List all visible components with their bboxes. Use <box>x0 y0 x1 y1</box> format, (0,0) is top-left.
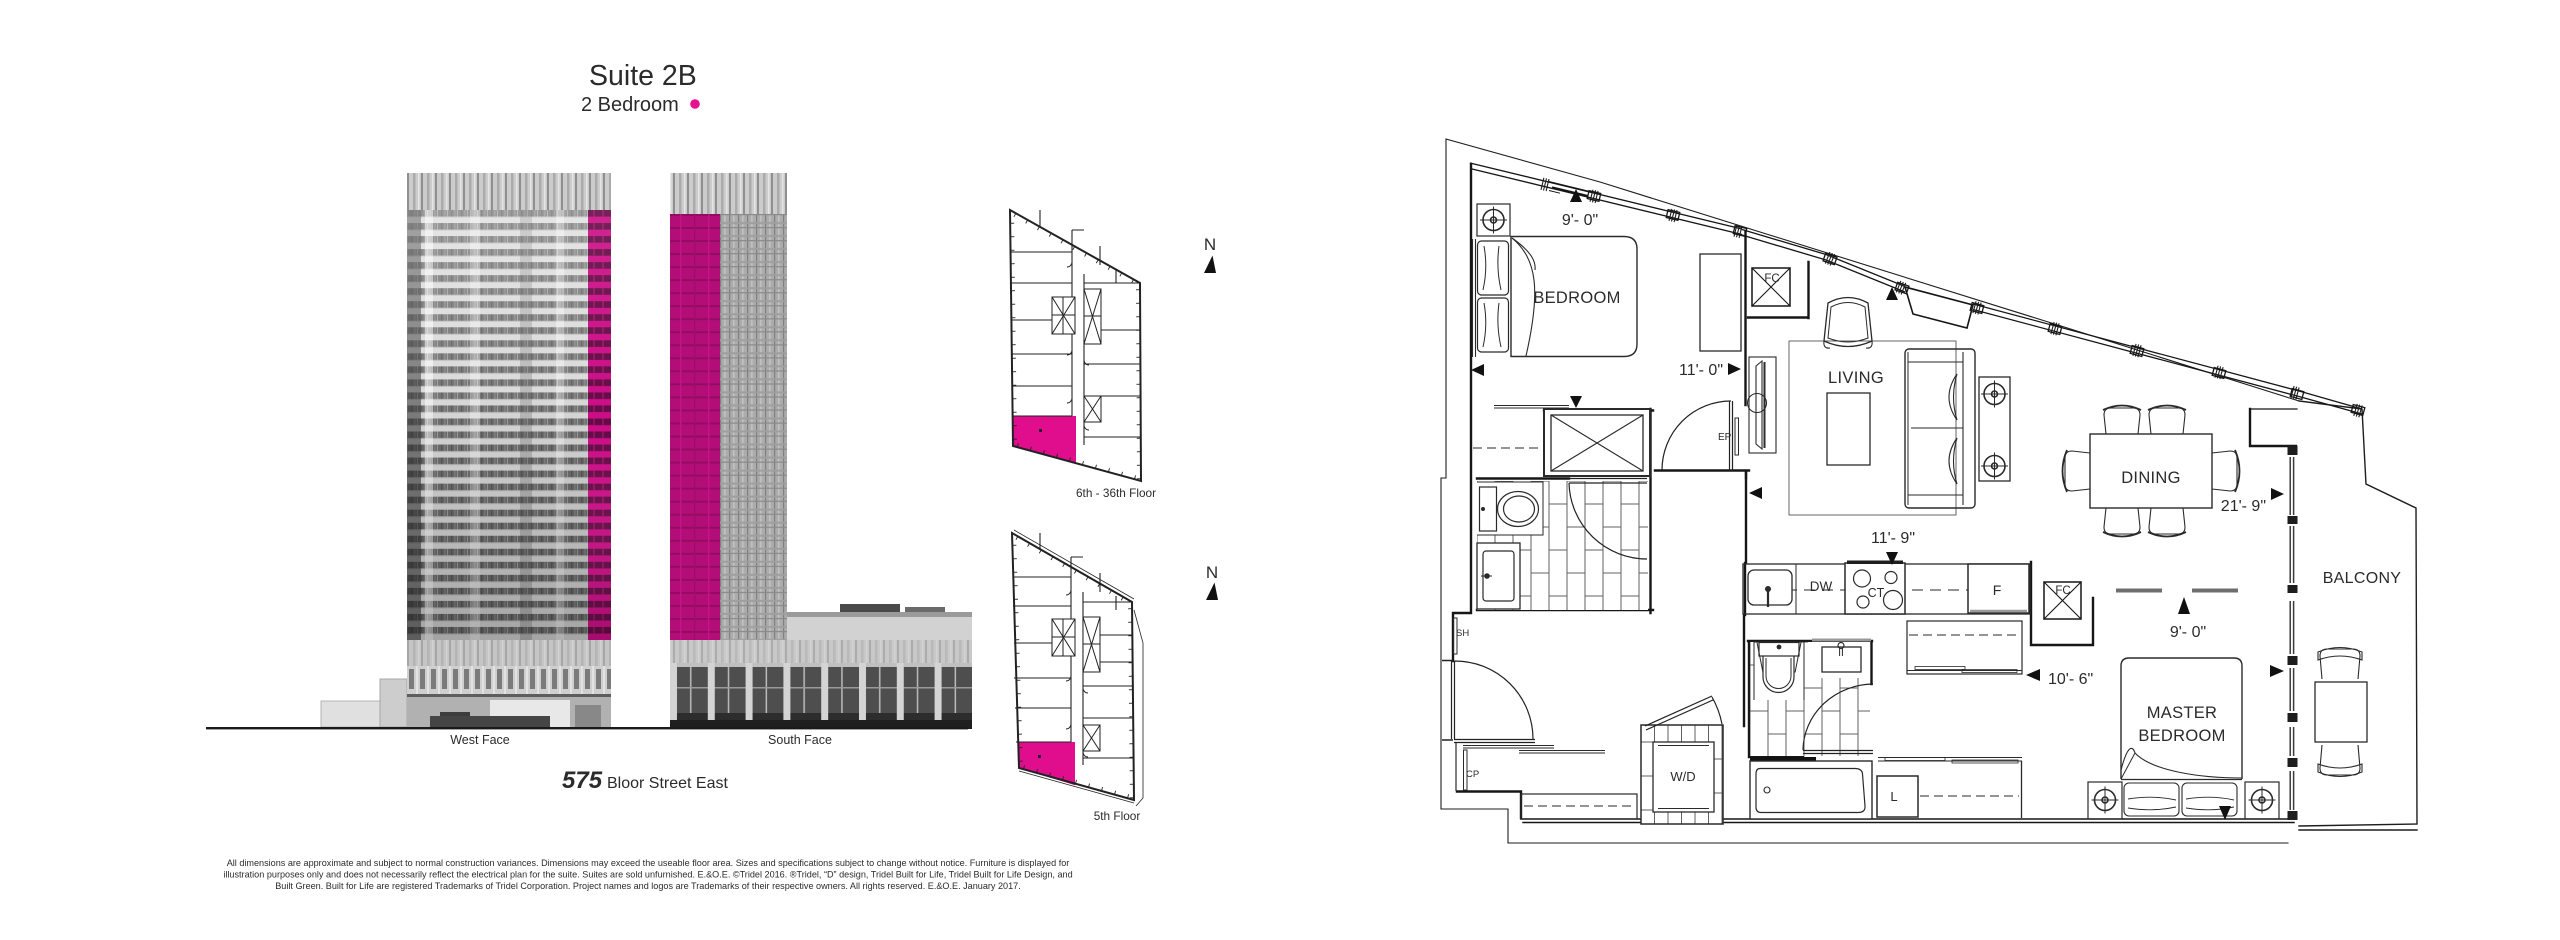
svg-text:DINING: DINING <box>2121 469 2181 487</box>
svg-text:575: 575 <box>562 767 603 794</box>
svg-text:MASTER: MASTER <box>2147 704 2218 722</box>
svg-text:2 Bedroom: 2 Bedroom <box>581 94 679 116</box>
svg-text:CT: CT <box>1868 586 1885 600</box>
svg-text:L: L <box>1890 789 1897 804</box>
svg-text:11'- 0": 11'- 0" <box>1679 362 1723 379</box>
svg-text:FC: FC <box>2055 585 2070 597</box>
svg-text:BEDROOM: BEDROOM <box>2138 727 2225 745</box>
svg-text:6th - 36th Floor: 6th - 36th Floor <box>1076 486 1156 500</box>
svg-text:CP: CP <box>1466 769 1479 780</box>
svg-text:South Face: South Face <box>768 733 832 747</box>
svg-text:BALCONY: BALCONY <box>2323 570 2402 587</box>
svg-text:10'- 6": 10'- 6" <box>2048 671 2093 688</box>
svg-text:All dimensions are approximate: All dimensions are approximate and subje… <box>227 858 1070 868</box>
svg-text:21'- 9": 21'- 9" <box>2221 498 2266 515</box>
svg-text:F: F <box>1993 582 2002 598</box>
svg-text:EP: EP <box>1718 432 1732 443</box>
svg-text:9'- 0": 9'- 0" <box>1562 212 1598 229</box>
svg-text:SH: SH <box>1456 628 1469 639</box>
svg-text:5th Floor: 5th Floor <box>1094 809 1141 823</box>
svg-text:11'- 9": 11'- 9" <box>1871 530 1915 547</box>
svg-text:Suite 2B: Suite 2B <box>589 60 697 92</box>
svg-text:N: N <box>1204 235 1216 254</box>
svg-text:N: N <box>1206 563 1218 582</box>
svg-text:DW: DW <box>1810 579 1833 594</box>
svg-text:W/D: W/D <box>1670 769 1695 784</box>
svg-text:Built Green. Built for Life ar: Built Green. Built for Life are register… <box>275 881 1021 891</box>
svg-text:9'- 0": 9'- 0" <box>2170 624 2206 641</box>
svg-text:BEDROOM: BEDROOM <box>1533 289 1620 307</box>
svg-text:Bloor Street East: Bloor Street East <box>607 775 729 792</box>
svg-text:West Face: West Face <box>450 733 510 747</box>
svg-text:illustration purposes only and: illustration purposes only and does not … <box>223 870 1072 880</box>
svg-text:FC: FC <box>1764 273 1779 285</box>
svg-text:LIVING: LIVING <box>1828 369 1884 387</box>
